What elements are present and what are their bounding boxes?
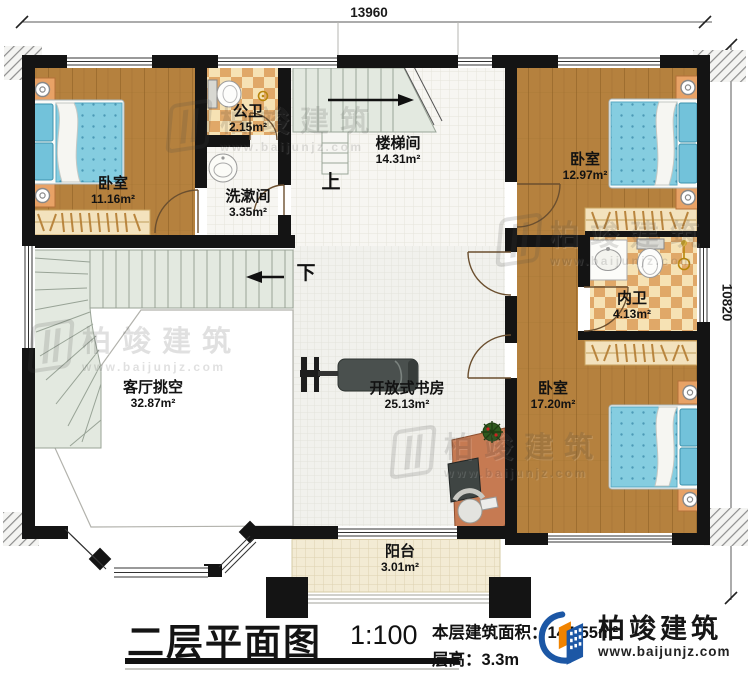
desk-chair-icon [458, 499, 482, 523]
washroom-fixtures [209, 154, 237, 182]
stair-up-label: 上 [321, 167, 340, 194]
floors [34, 68, 697, 592]
brand-url: www.baijunjz.com [598, 644, 731, 659]
window-top-2 [218, 55, 337, 68]
room-label-stairwell: 楼梯间14.31m² [375, 136, 420, 166]
window-right-ensuite [697, 248, 710, 322]
dimension-top: 13960 [338, 5, 400, 20]
washroom-floor [207, 135, 278, 235]
brand-logo: 柏竣建筑 www.baijunjz.com [538, 608, 731, 666]
title-underline-thin [125, 668, 459, 670]
room-label-bedroom-3: 卧室17.20m² [531, 381, 576, 411]
room-label-public-bath: 公卫2.15m² [229, 104, 267, 134]
toilet-icon [638, 249, 663, 278]
room-label-ensuite-bath: 内卫4.13m² [613, 291, 651, 321]
balcony-sliding-door [338, 526, 457, 539]
floor-plan-drawing [0, 0, 750, 681]
window-top-3 [458, 55, 492, 68]
basin-icon [595, 250, 621, 271]
balcony-column [489, 577, 531, 618]
brand-name: 柏竣建筑 [598, 615, 731, 645]
room-label-washroom: 洗漱间3.35m² [225, 189, 270, 219]
dimension-right: 10820 [720, 270, 735, 336]
room-label-balcony: 阳台3.01m² [381, 544, 419, 574]
bay-window [65, 529, 256, 579]
toilet-tank [637, 239, 664, 249]
title-underline [125, 658, 459, 664]
window-left [22, 246, 35, 348]
brand-logo-icon [538, 608, 590, 666]
room-label-bedroom-1: 卧室11.16m² [91, 176, 135, 206]
computer-monitor-icon [448, 458, 481, 502]
storey-height-line: 层高：3.3m [432, 646, 519, 670]
room-label-living-void: 客厅挑空32.87m² [123, 380, 183, 410]
toilet-tank [208, 80, 217, 108]
plan-scale: 1:100 [350, 620, 418, 651]
window-bedroom-3 [548, 533, 672, 545]
room-label-bedroom-2: 卧室12.97m² [563, 152, 608, 182]
window-top-4 [558, 55, 660, 68]
stair-down-label: 下 [296, 258, 315, 285]
room-label-open-study: 开放式书房25.13m² [369, 381, 444, 411]
floor-plan-canvas: 柏竣建筑 www.baijunjz.com 柏竣建筑 www.baijunjz.… [0, 0, 750, 681]
window-top-1 [67, 55, 152, 68]
